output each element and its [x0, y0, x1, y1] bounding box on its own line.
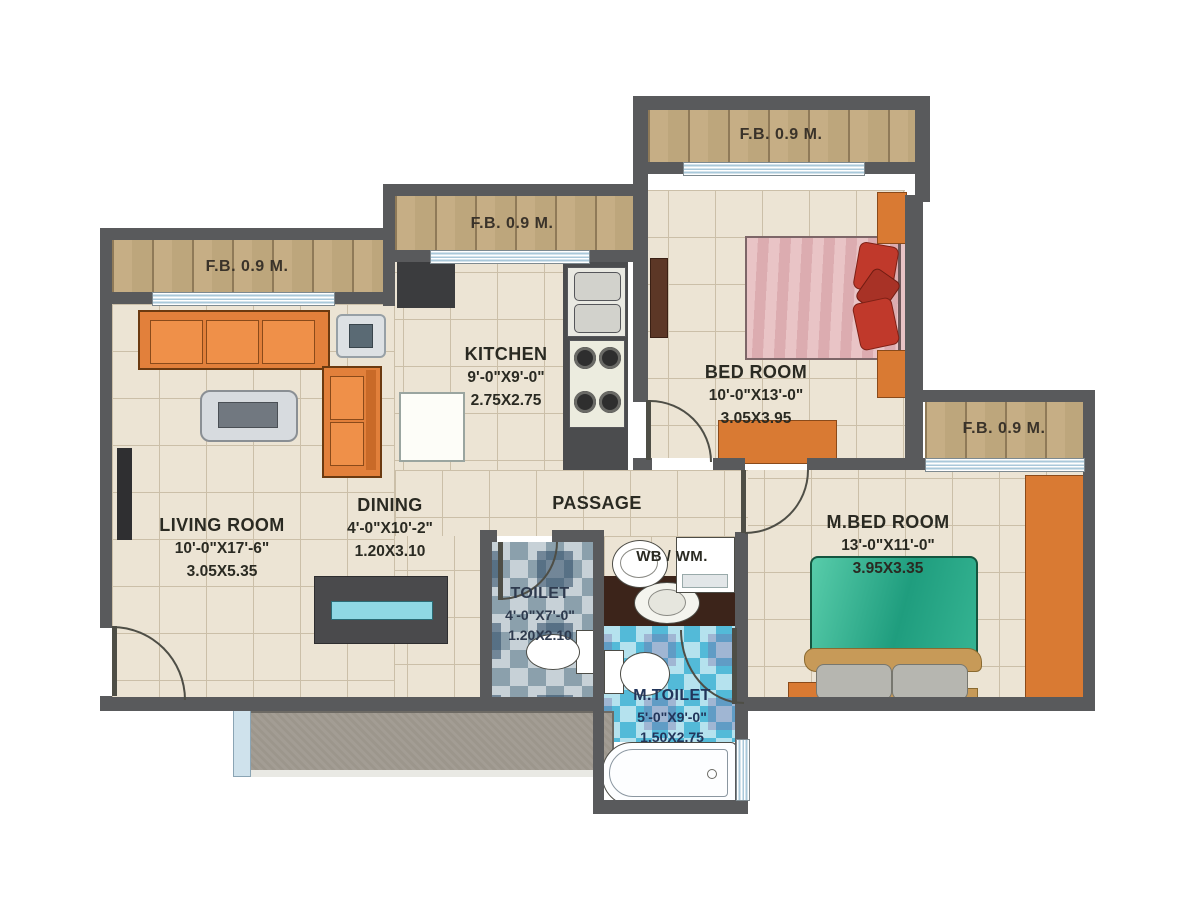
wall [100, 228, 395, 240]
sink-basin [574, 304, 621, 333]
room-dim-m: 2.75X2.75 [465, 390, 548, 412]
room-dim-ft: 5'-0"X9'-0" [633, 707, 711, 727]
window [152, 292, 335, 306]
toilet-label: TOILET 4'-0"X7'-0" 1.20X2.10 [505, 582, 575, 646]
kitchen-label: KITCHEN 9'-0"X9'-0" 2.75X2.75 [465, 341, 548, 412]
room-dim-m: 1.20X3.10 [347, 541, 433, 563]
wall [863, 162, 915, 174]
wall [905, 195, 923, 470]
room-name: TOILET [505, 582, 575, 605]
side-table [336, 314, 386, 358]
stove-burner [574, 391, 596, 413]
coffee-table [200, 390, 298, 442]
wall [735, 697, 1095, 711]
bedroom-door-leaf [646, 400, 651, 460]
master-bedroom-door-leaf [741, 470, 746, 533]
wall [480, 530, 492, 700]
bathtub-drain [707, 769, 717, 779]
wall [1083, 390, 1095, 711]
balcony-side-glass [233, 705, 251, 777]
room-dim-ft: 9'-0"X9'-0" [465, 367, 548, 389]
window [925, 458, 1085, 472]
wall [112, 292, 152, 304]
passage-label: PASSAGE [552, 490, 642, 516]
flower-bed-label: F.B. 0.9 M. [740, 126, 823, 144]
room-dim-m: 1.50X2.75 [633, 727, 711, 747]
bedroom-dresser [650, 258, 668, 338]
window [736, 739, 750, 801]
sofa-cushion [262, 320, 315, 364]
room-dim-m: 3.05X5.35 [159, 561, 284, 583]
stove-burner [599, 347, 621, 369]
door-opening [100, 628, 112, 696]
room-dim-ft: 4'-0"X7'-0" [505, 605, 575, 625]
bathtub [602, 742, 737, 806]
kitchen-cabinet [397, 262, 455, 308]
sink-basin [574, 272, 621, 301]
dining-table-glass [331, 601, 433, 620]
bedroom-label: BED ROOM 10'-0"X13'-0" 3.05X3.95 [705, 359, 807, 430]
living-room-label: LIVING ROOM 10'-0"X17'-6" 3.05X5.35 [159, 512, 284, 583]
wall [593, 800, 748, 814]
sofa-cushion [330, 422, 364, 466]
wall [383, 184, 645, 196]
sofa-backrest [366, 370, 376, 470]
window [430, 250, 590, 264]
bed-pillow [816, 664, 892, 700]
room-dim-ft: 10'-0"X13'-0" [705, 385, 807, 407]
window [683, 162, 865, 176]
sofa-two-seat [322, 366, 382, 478]
room-dim-m: 1.20X2.10 [505, 625, 575, 645]
dining-label: DINING 4'-0"X10'-2" 1.20X3.10 [347, 492, 433, 563]
room-name: PASSAGE [552, 490, 642, 516]
wall [648, 162, 683, 174]
wall [915, 390, 1095, 402]
kitchen-sink [567, 267, 626, 337]
room-name: DINING [347, 492, 433, 518]
master-bedroom-label: M.BED ROOM 13'-0"X11'-0" 3.95X3.35 [827, 509, 950, 580]
sofa-three-seat [138, 310, 330, 370]
wb-wm-label: WB / WM. [636, 546, 708, 568]
sofa-cushion [150, 320, 203, 364]
wall [395, 250, 430, 262]
stove-burner [574, 347, 596, 369]
room-dim-ft: 10'-0"X17'-6" [159, 538, 284, 560]
master-wardrobe [1025, 475, 1085, 703]
wall [713, 458, 745, 470]
wall [480, 530, 497, 542]
room-name: KITCHEN [465, 341, 548, 367]
flower-bed-label: F.B. 0.9 M. [471, 215, 554, 233]
fixture-name: WB / WM. [636, 546, 708, 568]
wall [807, 458, 925, 470]
sofa-cushion [206, 320, 259, 364]
refrigerator [399, 392, 465, 462]
wall [588, 250, 633, 262]
entrance-door-leaf [112, 626, 117, 696]
balcony-ledge [249, 711, 614, 777]
gas-stove [569, 340, 625, 428]
room-name: BED ROOM [705, 359, 807, 385]
bedroom-wardrobe [877, 192, 907, 244]
tv-unit [117, 448, 132, 540]
side-table-top [349, 324, 373, 348]
sofa-cushion [330, 376, 364, 420]
wall [915, 96, 930, 202]
flower-bed-label: F.B. 0.9 M. [206, 258, 289, 276]
room-dim-m: 3.05X3.95 [705, 408, 807, 430]
stove-burner [599, 391, 621, 413]
wall [383, 184, 395, 306]
bedroom-wardrobe [877, 350, 907, 398]
dining-table [314, 576, 448, 644]
toilet-door-leaf [498, 542, 503, 600]
coffee-table-top [218, 402, 278, 428]
room-dim-ft: 13'-0"X11'-0" [827, 535, 950, 557]
room-dim-m: 3.95X3.35 [827, 558, 950, 580]
floor-plan: F.B. 0.9 M. F.B. 0.9 M. F.B. 0.9 M. F.B.… [0, 0, 1200, 900]
bed-pillow [892, 664, 968, 700]
room-dim-ft: 4'-0"X10'-2" [347, 518, 433, 540]
master-toilet-label: M.TOILET 5'-0"X9'-0" 1.50X2.75 [633, 684, 711, 748]
vanity-basin-inner [648, 589, 686, 616]
room-name: M.BED ROOM [827, 509, 950, 535]
flower-bed-label: F.B. 0.9 M. [963, 420, 1046, 438]
washing-machine-panel [682, 574, 728, 588]
wall [633, 96, 930, 110]
room-name: M.TOILET [633, 684, 711, 707]
wall [593, 530, 604, 814]
master-toilet-door-leaf [732, 628, 737, 704]
room-name: LIVING ROOM [159, 512, 284, 538]
wall [633, 96, 648, 402]
